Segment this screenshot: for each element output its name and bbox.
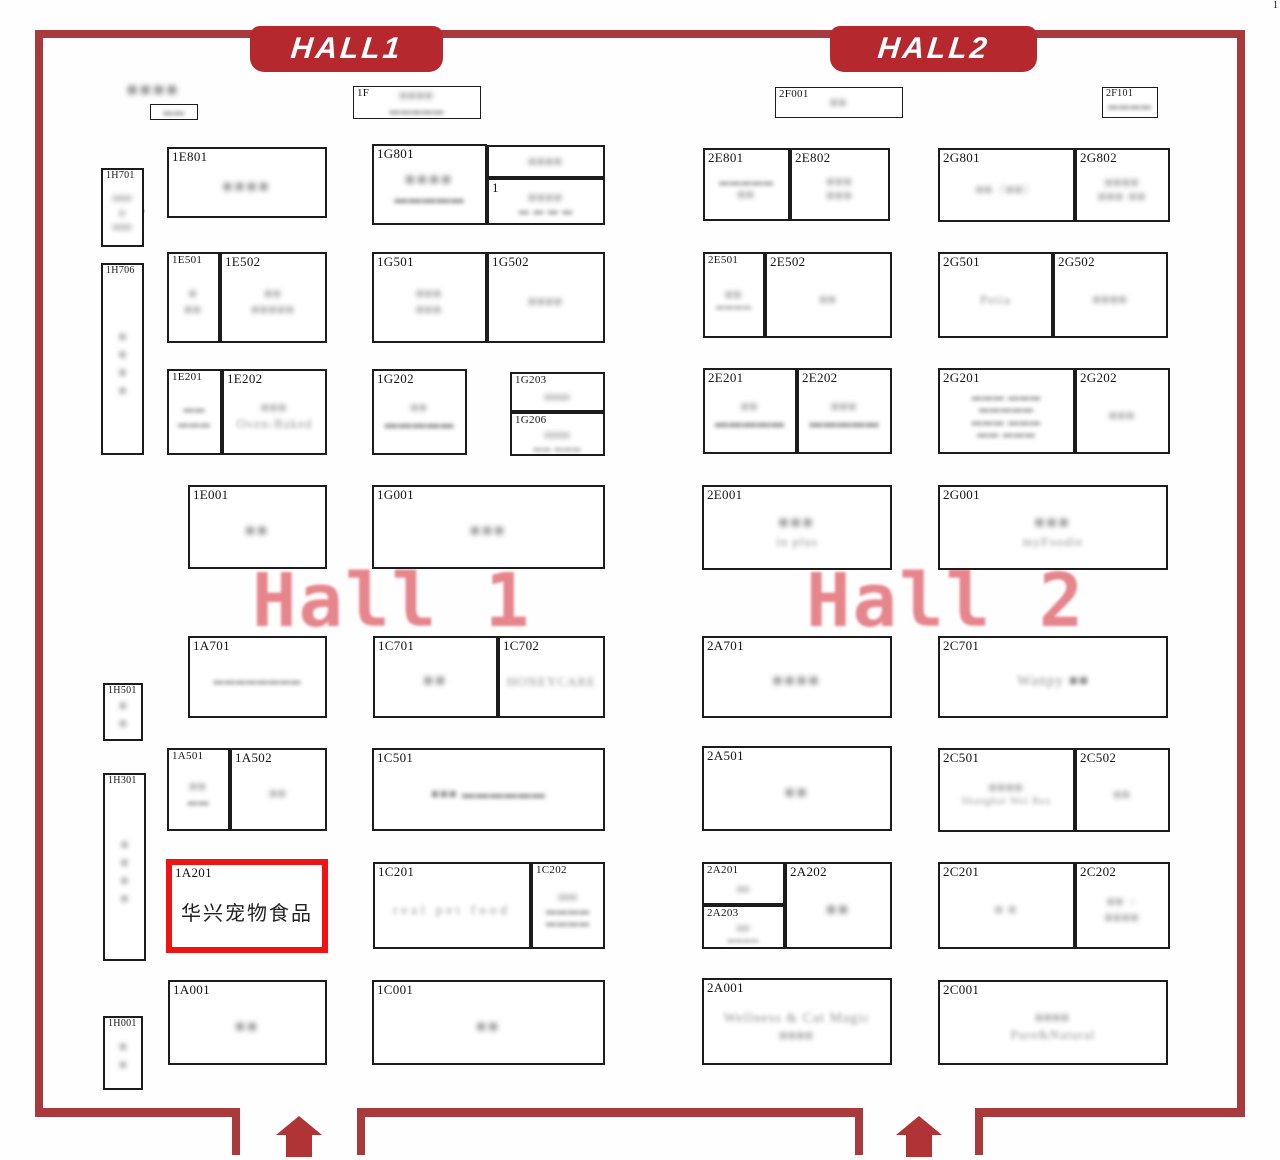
booth-code: 2A201 [707, 864, 738, 876]
booth-label-blurred: ■■■■ [773, 673, 821, 690]
booth-label-blurred: ▬▬▬ ▬▬▬ [972, 417, 1042, 429]
booth-stack-top: ■■■■ [487, 145, 605, 178]
booth-label-blurred: ▬▬▬▬ [546, 918, 590, 930]
booth-label-blurred: ■■ [830, 97, 847, 110]
booth-1E502: 1E502 ■■■■■■■ [220, 252, 327, 343]
booth-label-blurred: ■■■■ [529, 156, 564, 169]
booth-2E201: 2E201 ■■▬▬▬▬▬ [703, 368, 797, 454]
booth-code: 2G501 [943, 254, 980, 270]
booth-label-blurred: ■■ [117, 1041, 129, 1077]
booth-code: 1E501 [172, 254, 202, 266]
up-arrow-icon [276, 1116, 322, 1157]
wall-right [1237, 30, 1245, 1117]
booth-1E202: 1E202 ■■■Oven-Baked [222, 369, 327, 455]
booth-label-blurred: Pure&Natural [1011, 1028, 1096, 1043]
booth-code: 2E001 [707, 487, 742, 503]
hall2-banner: HALL2 [830, 26, 1037, 72]
booth-label-blurred: ▬▬ [188, 797, 210, 809]
booth-label-blurred: ▬▬▬ [178, 419, 211, 431]
booth-2C001: 2C001 ■■■■Pure&Natural [938, 980, 1168, 1065]
booth-code: 2G802 [1080, 150, 1117, 166]
booth-code: 2C201 [943, 864, 979, 880]
page-corner-mark: 1 [1273, 0, 1278, 11]
booth-label-blurred: ■■（■■） [976, 184, 1037, 197]
hall2-watermark: Hall 2 [806, 558, 1085, 644]
booth-code: 1E502 [225, 254, 260, 270]
wall-bottom-segment-2 [357, 1108, 863, 1117]
booth-label-blurred: ■■ [1114, 789, 1131, 802]
booth-1C201: 1C201 real pet food [373, 862, 531, 949]
booth-code: 2G801 [943, 150, 980, 166]
booth-label-blurred: real pet food [393, 903, 511, 918]
booth-code: 1G501 [377, 254, 414, 270]
booth-label-blurred: ▬▬▬▬▬ [385, 417, 455, 432]
booth-1H001: 1H001 ■■ [103, 1016, 143, 1090]
booth-label-blurred: ■■■■ [1105, 177, 1140, 190]
booth-label-blurred: ■■■ [470, 523, 506, 540]
booth-2E501: 2E501 ■■▬▬▬▬ [703, 252, 765, 338]
booth-label-blurred: ■■ [235, 1019, 259, 1036]
booth-label-blurred: ■■■ [417, 304, 443, 317]
booth-label-blurred: ▬▬▬▬▬ [395, 192, 465, 207]
booth-2G801: 2G801 ■■（■■） [938, 148, 1075, 222]
booth-code: 2A701 [707, 638, 744, 654]
booth-code: 1G801 [377, 146, 414, 162]
booth-label-blurred: ■■ [411, 402, 428, 415]
booth-label-blurred: ■ [119, 207, 125, 221]
booth-1A502: 1A502 ■■ [230, 748, 327, 831]
booth-label-blurred: ■■■■ [1105, 912, 1140, 925]
booth-code: 1H701 [106, 170, 135, 181]
booth-label-blurred: Shanghai Wei Rex [962, 796, 1052, 808]
wall-bottom-stub-1 [232, 1108, 240, 1155]
booth-2F101: 2F101 ▬▬▬▬ [1102, 87, 1158, 118]
booth-code: 1C201 [378, 864, 414, 880]
booth-code: 2E801 [708, 150, 743, 166]
booth-code: 1C001 [377, 982, 413, 998]
booth-1A501: 1A501 ■■▬▬ [167, 748, 230, 831]
booth-1G206: 1G206 ■■■■▬▬ ▬▬▬ [510, 412, 605, 456]
booth-code: 2C202 [1080, 864, 1116, 880]
booth-label-blurred: ■■■■ [1036, 1012, 1071, 1025]
booth-1G501: 1G501 ■■■■■■ [372, 252, 487, 343]
booth-1C501: 1C501 ■■■ ▬▬▬▬▬▬ [372, 748, 605, 831]
booth-label-blurred: ▬▬▬▬ [716, 302, 752, 311]
booth-1C001: 1C001 ■■ [372, 980, 605, 1065]
booth-code: 1 [492, 180, 499, 196]
booth-label-blurred: ■ [189, 288, 198, 301]
booth-1A701: 1A701 ▬▬▬▬▬▬▬▬ [188, 636, 327, 718]
booth-1G203: 1G203 ■■■■ [510, 372, 605, 412]
booth-label-blurred: ■■ [185, 304, 202, 317]
booth-label-blurred: ▬▬▬▬▬ [979, 404, 1034, 416]
booth-2A501: 2A501 ■■ [702, 746, 892, 831]
booth-label-blurred: ■ ■ [995, 904, 1017, 917]
booth-code: 2E202 [802, 370, 837, 386]
booth-code: 2E501 [708, 254, 738, 266]
booth-1H501: 1H501 ■■ [103, 683, 143, 741]
booth-label-blurred: ■■ [245, 523, 269, 540]
booth-label-blurred: ■■ [117, 700, 129, 736]
booth-label-blurred: ▬▬▬▬▬ [719, 177, 774, 189]
booth-1E001: 1E001 ■■ [188, 485, 327, 569]
booth-2F001: 2F001 ■■ [775, 87, 903, 118]
wall-bottom-segment-1 [35, 1108, 240, 1117]
booth-stack-bottom: 1 ■■■■▬ ▬ ▬ ▬ [487, 178, 605, 225]
booth-label-blurred: HONEYCARE [507, 675, 596, 690]
booth-label-blurred: ■■■ ■■ [1099, 191, 1147, 204]
booth-label-blurred: ■■ [265, 288, 282, 301]
booth-label-blurred: ■■■■■ [252, 304, 295, 317]
floorplan-canvas: HALL1 HALL2 Hall 1 Hall 2 9 1 ■■■■ ▬▬ 1F… [0, 0, 1280, 1160]
booth-label-blurred: ▬▬ [163, 107, 185, 119]
booth-label-blurred: ■■■ ▬▬▬▬▬▬ [431, 787, 546, 802]
booth-code: 1A501 [172, 750, 203, 762]
booth-label-blurred: ■■■ [827, 176, 853, 189]
booth-code: 2F101 [1106, 88, 1133, 99]
booth-2G001: 2G001 ■■■myFoodie [938, 485, 1168, 570]
booth-1C202: 1C202 ■■■▬▬▬▬▬▬▬▬ [531, 862, 605, 949]
booth-label-blurred: Wellness & Cat Magic [724, 1011, 871, 1027]
booth-2A201: 2A201 ■■ [702, 862, 785, 905]
booth-1H301: 1H301 ■■■■ [103, 773, 146, 961]
booth-label-blurred: ■■ [270, 788, 287, 801]
hall1-watermark: Hall 1 [252, 558, 531, 644]
highlighted-booth-name: 华兴宠物食品 [181, 897, 313, 926]
booth-code: 1E001 [193, 487, 228, 503]
booth-label-blurred: Oven-Baked [237, 417, 313, 432]
booth-label-blurred: ■■■ [827, 190, 853, 203]
booth-label-blurred: ■■■■ [529, 192, 564, 205]
booth-label-blurred: ■■ [741, 401, 758, 414]
booth-label-blurred: ▬▬▬▬ [728, 936, 760, 944]
booth-label-blurred: ▬▬▬ ▬▬▬ [972, 392, 1042, 404]
booth-code: 1H301 [108, 775, 137, 786]
booth-code: 1G206 [515, 414, 546, 426]
wall-bottom-stub-4 [975, 1108, 983, 1155]
booth-label-blurred: ■■■■ [1093, 294, 1128, 307]
booth-2A202: 2A202 ■■ [785, 862, 892, 949]
booth-label-blurred: ■■■■ [223, 179, 271, 196]
booth-code: 2G201 [943, 370, 980, 386]
entrance-arrow-hall1 [276, 1116, 322, 1160]
booth-label-blurred: ■■ [820, 294, 837, 307]
booth-2C501: 2C501 ■■■■Shanghai Wei Rex [938, 748, 1075, 832]
booth-2E202: 2E202 ■■■▬▬▬▬▬ [797, 368, 892, 454]
booth-1G001: 1G001 ■■■ [372, 485, 605, 569]
booth-code: 1H001 [108, 1018, 137, 1029]
booth-code: 2A203 [707, 907, 738, 919]
booth-code: 1C501 [377, 750, 413, 766]
booth-code: 2C001 [943, 982, 979, 998]
booth-2E801: 2E801 ▬▬▬▬▬■■ [703, 148, 790, 221]
booth-label-blurred: ■■ [476, 1019, 500, 1036]
topleft-blurred-text: ■■■■ [127, 80, 180, 100]
booth-1H706: 1H706 ■■■■ [101, 263, 144, 455]
booth-1F: 1F ■■■■▬▬▬▬▬ [353, 86, 481, 119]
booth-2G502: 2G502 ■■■■ [1053, 252, 1168, 338]
booth-1H701: 1H701 ■■■■■■■ [101, 168, 144, 247]
booth-label-blurred: ■■ + [1107, 896, 1137, 909]
booth-code: 1G502 [492, 254, 529, 270]
booth-label-blurred: ■■■ [1110, 410, 1136, 423]
booth-1A201-highlighted: 1A201 华兴宠物食品 [166, 859, 328, 953]
booth-label-blurred: ▬▬▬▬▬▬▬▬ [214, 676, 302, 688]
booth-label-blurred: ■■■■ [119, 839, 131, 911]
booth-code: 1C702 [503, 638, 539, 654]
booth-label-blurred: ■■■ [832, 401, 858, 414]
booth-1G801: 1G801 ■■■■▬▬▬▬▬ [372, 144, 487, 225]
booth-1G502: 1G502 ■■■■ [487, 252, 605, 343]
booth-2E802: 2E802 ■■■■■■ [790, 148, 890, 221]
booth-code: 1C701 [378, 638, 414, 654]
booth-2C202: 2C202 ■■ +■■■■ [1075, 862, 1170, 949]
hall1-banner: HALL1 [250, 26, 443, 72]
booth-2C701: 2C701 Wanpy ■■ [938, 636, 1168, 718]
booth-code: 1E801 [172, 149, 207, 165]
booth-1G202: 1G202 ■■▬▬▬▬▬ [372, 369, 467, 455]
booth-label-blurred: ■■ [737, 883, 750, 897]
booth-code: 2C502 [1080, 750, 1116, 766]
hall2-banner-label: HALL2 [876, 32, 991, 66]
booth-label-blurred: ■■■■ [780, 1030, 815, 1043]
booth-code: 2E201 [708, 370, 743, 386]
booth-label-blurred: ■■ [423, 673, 447, 690]
booth-code: 2E802 [795, 150, 830, 166]
booth-code: 2E502 [770, 254, 805, 270]
booth-label-blurred: ■■■■ [989, 782, 1024, 795]
booth-code: 2G202 [1080, 370, 1117, 386]
topleft-small-box: ▬▬ [150, 104, 198, 120]
booth-1A001: 1A001 ■■ [168, 980, 327, 1065]
booth-label-blurred: ▬▬ [184, 404, 206, 416]
booth-label-blurred: ■■ [725, 289, 742, 302]
booth-label-blurred: ▬▬ ▬▬▬ [977, 429, 1036, 441]
booth-2G201: 2G201 ▬▬▬ ▬▬▬▬▬▬▬▬▬▬▬ ▬▬▬▬▬ ▬▬▬ [938, 368, 1075, 454]
booth-label-blurred: ■■■ [113, 221, 132, 235]
booth-code: 1A001 [173, 982, 210, 998]
booth-code: 2A001 [707, 980, 744, 996]
booth-2E001: 2E001 ■■■in plus [702, 485, 892, 570]
booth-2G802: 2G802 ■■■■■■■ ■■ [1075, 148, 1170, 222]
up-arrow-icon [896, 1116, 942, 1157]
booth-label-blurred: ▬▬▬▬▬ [715, 416, 785, 431]
booth-2G202: 2G202 ■■■ [1075, 368, 1170, 454]
wall-bottom-segment-3 [975, 1108, 1245, 1117]
booth-label-blurred: Petia [980, 293, 1011, 308]
booth-label-blurred: ■■ [738, 189, 755, 202]
booth-label-blurred: ■■■■ [117, 331, 129, 403]
booth-label-blurred: ■■ [737, 922, 750, 936]
booth-label-blurred: ■■■ [1035, 515, 1071, 532]
booth-label-blurred: ■■■■ [400, 90, 435, 103]
booth-code: 1F [357, 87, 369, 99]
booth-label-blurred: ■■■ [558, 891, 577, 905]
booth-label-blurred: ■■■■ [529, 296, 564, 309]
booth-code: 1G202 [377, 371, 414, 387]
booth-label-blurred: ■■■ [262, 402, 288, 415]
booth-label-blurred: ■■■■ [545, 429, 571, 443]
booth-1C701: 1C701 ■■ [373, 636, 498, 718]
booth-code: 2C501 [943, 750, 979, 766]
wall-bottom-stub-3 [855, 1108, 863, 1155]
booth-label-blurred: ■■■ [113, 192, 132, 206]
booth-label-blurred: ■■■■ [545, 391, 571, 405]
booth-label-blurred: ■■■ [779, 515, 815, 532]
booth-2E502: 2E502 ■■ [765, 252, 892, 338]
booth-code: 2G001 [943, 487, 980, 503]
booth-code: 1E202 [227, 371, 262, 387]
booth-code: 2F001 [779, 88, 809, 100]
entrance-arrow-hall2 [896, 1116, 942, 1160]
booth-label-blurred: in plus [776, 535, 818, 550]
booth-code: 1E201 [172, 371, 202, 383]
booth-label-blurred: Wanpy ■■ [1017, 673, 1089, 690]
booth-2G501: 2G501 Petia [938, 252, 1053, 338]
booth-code: 1A502 [235, 750, 272, 766]
booth-code: 2G502 [1058, 254, 1095, 270]
booth-label-blurred: ■■■■ [405, 172, 453, 189]
booth-2A701: 2A701 ■■■■ [702, 636, 892, 718]
booth-code: 1C202 [536, 864, 567, 876]
booth-code: 1G203 [515, 374, 546, 386]
wall-bottom-stub-2 [357, 1108, 365, 1155]
booth-1E501: 1E501 ■■■ [167, 252, 220, 343]
booth-label-blurred: ■■ [826, 902, 850, 919]
booth-2C201: 2C201 ■ ■ [938, 862, 1075, 949]
booth-label-blurred: ■■■ [417, 288, 443, 301]
booth-label-blurred: ▬▬▬▬ [546, 906, 590, 918]
booth-code: 2C701 [943, 638, 979, 654]
booth-label-blurred: ▬▬▬▬ [1108, 101, 1152, 113]
booth-label-blurred: myFoodie [1023, 535, 1084, 550]
booth-label-blurred: ■■ [785, 785, 809, 802]
booth-1E201: 1E201 ▬▬▬▬▬ [167, 369, 222, 455]
booth-code: 1H501 [108, 685, 137, 696]
booth-label-blurred: ▬ ▬ ▬ ▬ [519, 206, 574, 218]
booth-2A203: 2A203 ■■▬▬▬▬ [702, 905, 785, 949]
booth-1C702: 1C702 HONEYCARE [498, 636, 605, 718]
booth-code: 2A501 [707, 748, 744, 764]
wall-left [35, 30, 43, 1117]
booth-code: 2A202 [790, 864, 827, 880]
booth-label-blurred: ▬▬▬▬▬ [390, 106, 445, 118]
wall-top [35, 30, 1245, 38]
booth-code: 1A701 [193, 638, 230, 654]
booth-label-blurred: ▬▬ ▬▬▬ [534, 444, 582, 453]
booth-code: 1H706 [106, 265, 135, 276]
booth-label-blurred: ▬▬▬▬▬ [810, 416, 880, 431]
booth-label-blurred: ■■ [190, 781, 207, 794]
booth-1E801: 1E801 ■■■■ [167, 147, 327, 218]
booth-2A001: 2A001 Wellness & Cat Magic■■■■ [702, 978, 892, 1065]
booth-2C502: 2C502 ■■ [1075, 748, 1170, 832]
hall1-banner-label: HALL1 [289, 32, 404, 66]
booth-code: 1G001 [377, 487, 414, 503]
booth-code: 1A201 [175, 865, 212, 881]
